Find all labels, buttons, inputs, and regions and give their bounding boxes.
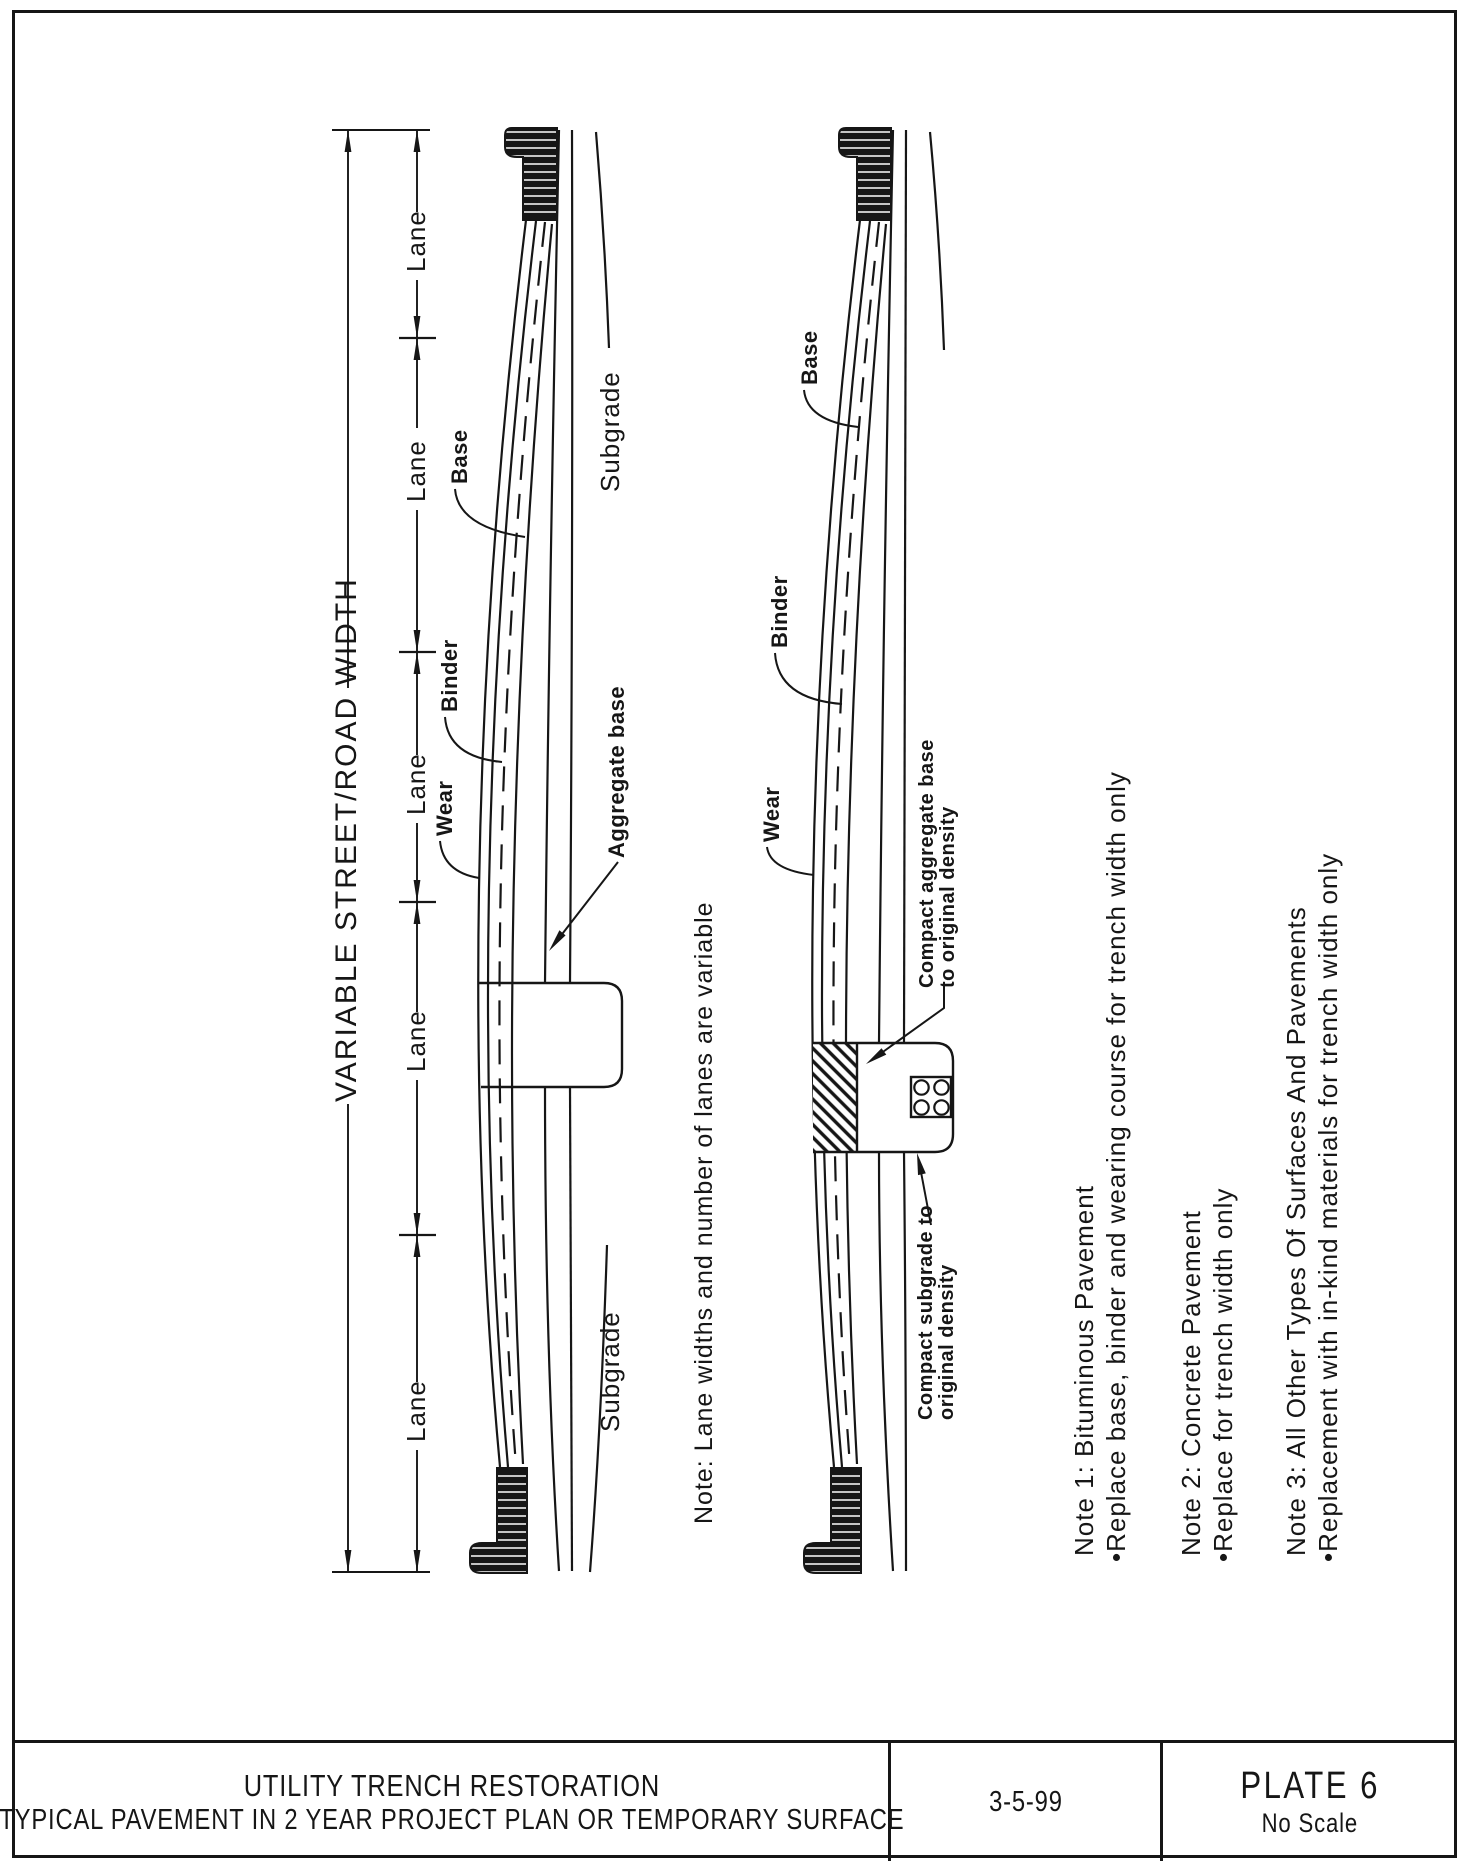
- pipe-icon: [914, 1100, 928, 1114]
- note2-bullet: •Replace for trench width only: [1210, 1188, 1237, 1562]
- title-block-cell-plate: PLATE 6 No Scale: [1163, 1746, 1457, 1858]
- curb-bottom-left: [470, 1468, 527, 1573]
- compact-aggregate-line1: Compact aggregate base: [917, 739, 938, 988]
- note1-heading: Note 1: Bituminous Pavement: [1071, 1185, 1098, 1556]
- compact-aggregate-label: Compact aggregate base to original densi…: [917, 739, 959, 988]
- compact-aggregate-line2: to original density: [938, 739, 959, 988]
- curb-bottom-right: [804, 1468, 861, 1573]
- lane-label-1: Lane: [403, 210, 430, 272]
- note3-bullet: •Replacement with in-kind materials for …: [1315, 853, 1342, 1562]
- sheet-date: 3-5-99: [989, 1786, 1063, 1819]
- binder-label-left: Binder: [438, 639, 461, 712]
- curb-top-right: [839, 128, 891, 220]
- drawing-sheet: VARIABLE STREET/ROAD WIDTH Lane Lane Lan…: [0, 0, 1475, 1874]
- lane-label-2: Lane: [403, 440, 430, 502]
- sheet-title: UTILITY TRENCH RESTORATION: [244, 1768, 660, 1804]
- binder-label-right: Binder: [768, 575, 791, 648]
- wear-label-right: Wear: [760, 787, 783, 842]
- note2-heading: Note 2: Concrete Pavement: [1178, 1210, 1205, 1556]
- lane-label-5: Lane: [403, 1380, 430, 1442]
- center-note: Note: Lane widths and number of lanes ar…: [691, 901, 717, 1524]
- lane-label-4: Lane: [403, 1010, 430, 1072]
- base-label-right: Base: [798, 330, 821, 385]
- dimension-lanes: [399, 130, 436, 1572]
- subgrade-label-lower: Subgrade: [597, 1311, 624, 1432]
- scale-note: No Scale: [1262, 1808, 1358, 1839]
- leader-arrowheads: [549, 930, 926, 1175]
- note1-bullet: •Replace base, binder and wearing course…: [1103, 771, 1130, 1562]
- base-label-left: Base: [448, 429, 471, 484]
- pipe-icon: [914, 1080, 928, 1094]
- compact-subgrade-line1: Compact subgrade to: [916, 1205, 937, 1420]
- note3-heading: Note 3: All Other Types Of Surfaces And …: [1283, 906, 1310, 1556]
- plate-number: PLATE 6: [1240, 1765, 1380, 1808]
- curb-top-left: [505, 128, 557, 220]
- title-block-cell-title: UTILITY TRENCH RESTORATION TYPICAL PAVEM…: [20, 1746, 884, 1858]
- road-width-dimension-label: VARIABLE STREET/ROAD WIDTH: [331, 577, 363, 1102]
- lane-label-3: Lane: [403, 753, 430, 815]
- sheet-subtitle: TYPICAL PAVEMENT IN 2 YEAR PROJECT PLAN …: [0, 1804, 905, 1837]
- subgrade-label-upper: Subgrade: [597, 371, 624, 492]
- pavement-layers-left: [478, 130, 609, 1572]
- compact-subgrade-label: Compact subgrade to original density: [916, 1205, 958, 1420]
- drawing-canvas: [0, 0, 1475, 1874]
- pipe-bundle: [911, 1077, 951, 1117]
- trench-outline-left: [478, 983, 622, 1087]
- title-block-top-rule: [12, 1740, 1457, 1743]
- wear-label-left: Wear: [433, 781, 456, 836]
- trench-backfill-hatch: [813, 1044, 857, 1151]
- pipe-icon: [934, 1080, 948, 1094]
- aggregate-base-label: Aggregate base: [605, 686, 628, 858]
- pipe-icon: [934, 1100, 948, 1114]
- compact-subgrade-line2: original density: [937, 1205, 958, 1420]
- title-block-cell-date: 3-5-99: [891, 1746, 1160, 1858]
